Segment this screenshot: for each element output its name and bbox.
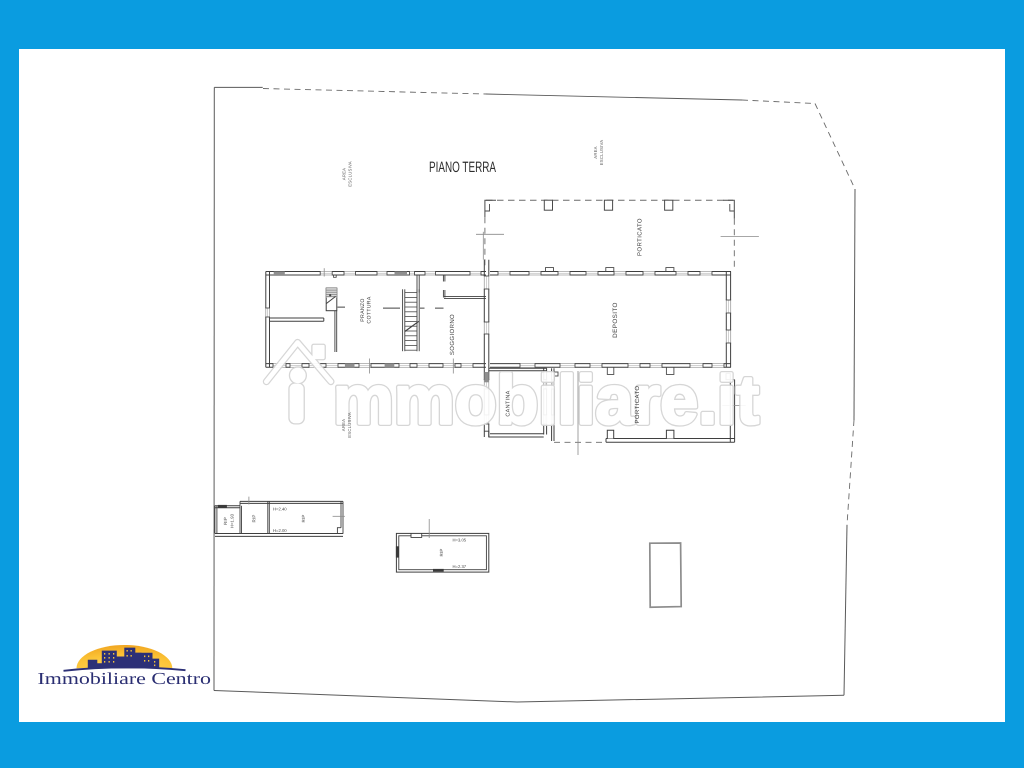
svg-text:H=1.93: H=1.93 bbox=[230, 513, 235, 528]
svg-text:Immobiliare Centro: Immobiliare Centro bbox=[38, 669, 212, 688]
svg-text:H=2.37: H=2.37 bbox=[453, 564, 467, 569]
svg-text:SOGGIORNO: SOGGIORNO bbox=[449, 314, 456, 355]
svg-text:DEPOSITO: DEPOSITO bbox=[612, 302, 619, 338]
svg-text:COTTURA: COTTURA bbox=[367, 296, 373, 323]
svg-text:PRANZO: PRANZO bbox=[360, 298, 366, 321]
svg-text:H=3.05: H=3.05 bbox=[453, 538, 467, 543]
svg-text:PORTICATO: PORTICATO bbox=[636, 218, 643, 256]
svg-text:RIP: RIP bbox=[301, 514, 306, 522]
svg-text:PIANO TERRA: PIANO TERRA bbox=[429, 159, 496, 176]
svg-text:H=2.00: H=2.00 bbox=[273, 528, 287, 533]
svg-text:RIP: RIP bbox=[223, 517, 228, 525]
svg-text:RIP: RIP bbox=[439, 548, 444, 556]
svg-text:AREA: AREA bbox=[593, 146, 598, 159]
svg-text:PORTICATO: PORTICATO bbox=[634, 386, 641, 424]
svg-text:ESCLUSIVA: ESCLUSIVA bbox=[347, 412, 352, 438]
svg-text:CANTINA: CANTINA bbox=[506, 390, 512, 416]
svg-text:AREA: AREA bbox=[342, 168, 347, 181]
svg-text:mmobiliare.it: mmobiliare.it bbox=[333, 362, 759, 439]
svg-text:ESCLUSIVA: ESCLUSIVA bbox=[348, 161, 353, 187]
svg-text:RIP: RIP bbox=[252, 514, 257, 522]
svg-text:H=2.40: H=2.40 bbox=[273, 507, 287, 512]
svg-text:ESCLUSIVA: ESCLUSIVA bbox=[599, 140, 604, 166]
svg-text:AREA: AREA bbox=[341, 419, 346, 432]
